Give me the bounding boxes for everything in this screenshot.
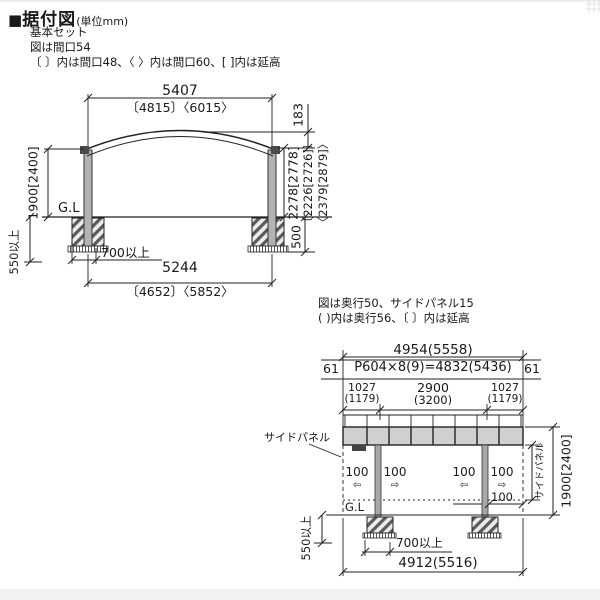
dim-offset-3: 100 [453, 466, 476, 479]
dim-footing-offset: 700以上 [101, 246, 150, 259]
footing-right [468, 517, 501, 538]
dim-embed-min: 550以上 [8, 230, 20, 275]
dim-roof-rise: 183 [291, 103, 304, 127]
dim-height-left: 1900[2400] [26, 146, 39, 219]
dim-offset-4: 100 [491, 466, 514, 479]
dim-depth-top: 4954(5558) [393, 343, 472, 357]
dim-width-top: 5407 [162, 84, 198, 99]
subtitle-set: 基本セット [30, 26, 88, 38]
side-panel-leader-line [309, 444, 341, 457]
post-right [268, 150, 276, 246]
installation-diagram-page: ■据付図(単位mm) 基本セット 図は間口54 〔 〕内は間口48、〈 〉内は間… [0, 0, 600, 600]
post-left [84, 150, 92, 246]
dim-height-right: 1900[2400] [559, 434, 572, 507]
subtitle-width: 図は間口54 [30, 41, 91, 53]
dim-offset-2: 100 [384, 466, 407, 479]
dim-height-main: 2278[2778] [286, 146, 299, 219]
diagram-linework [0, 0, 600, 600]
dim-footing-depth: 500 [289, 225, 302, 249]
footing-left [363, 517, 396, 538]
dim-seg2-alt: (3200) [414, 394, 452, 406]
side-panel-outline [343, 445, 523, 515]
dim-height-alt48: 〔2226[2726]〕 [302, 138, 314, 229]
dim-seg3: 1027 [491, 382, 519, 394]
roof-pitch-ticks [345, 415, 521, 427]
title-marker: ■ [8, 11, 22, 29]
dim-width-bottom-alt: 〔4652〕〈5852〉 [126, 285, 233, 298]
dim-seg1: 1027 [348, 382, 376, 394]
side-note-2: ( )内は奥行56、〔 〕内は延高 [318, 312, 470, 324]
dim-seg1-alt: (1179) [345, 394, 380, 405]
dim-offset-1: 100 [346, 466, 369, 479]
side-note-1: 図は奥行50、サイドパネル15 [318, 297, 474, 309]
arrow-left-icon: ⇦ [460, 481, 468, 492]
dim-embed-min: 550以上 [300, 516, 312, 561]
dim-seg3-alt: (1179) [488, 394, 523, 405]
dim-width-bottom: 5244 [162, 261, 198, 276]
dim-pitch-formula: P604×8(9)=4832(5436) [354, 361, 511, 375]
dim-width-top-alt: 〔4815〕〈6015〉 [126, 101, 233, 114]
subtitle-legend: 〔 〕内は間口48、〈 〉内は間口60、[ ]内は延高 [30, 56, 280, 68]
page-edge-strips [0, 0, 600, 600]
ground-level-label: G.L [58, 202, 79, 216]
dim-edge-right: 61 [524, 362, 540, 375]
dim-panel-gap: 100 [491, 491, 513, 503]
side-panel-label: サイドパネル [264, 432, 330, 444]
dim-edge-left: 61 [323, 362, 339, 375]
roof-band [343, 427, 523, 451]
arrow-left-icon: ⇦ [353, 481, 361, 492]
side-panel-label-right: サイドパネル [536, 442, 546, 499]
arrow-right-icon: ⇨ [391, 481, 399, 492]
dim-depth-bottom: 4912(5516) [398, 556, 477, 570]
ground-level-label: G.L [345, 501, 364, 513]
dim-footing-offset: 700以上 [396, 537, 443, 550]
roof-arc [80, 131, 280, 157]
dim-height-alt60: 〈2379[2879]〉 [317, 138, 329, 229]
